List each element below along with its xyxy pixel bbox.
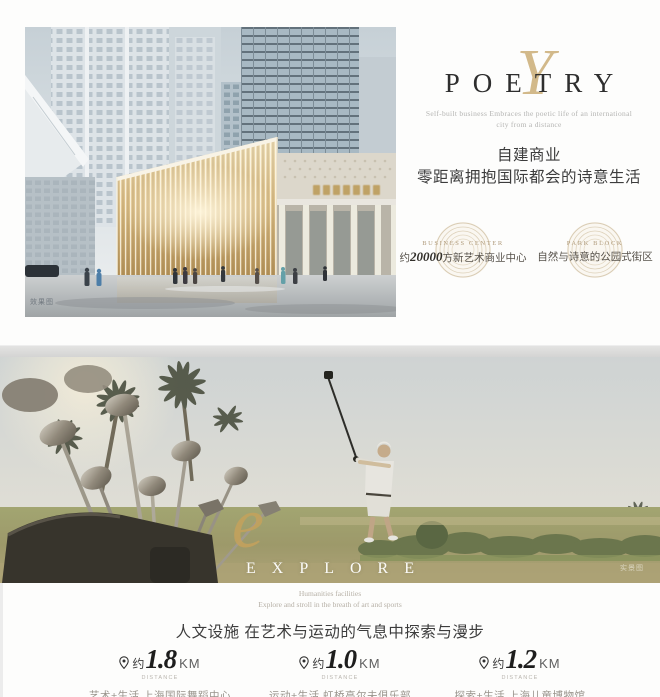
distance-item-children-museum: 约 1.2 KM DISTANCE 探索+生活 上海儿童博物馆 — [430, 646, 610, 697]
bottom-chinese-heading: 人文设施 在艺术与运动的气息中探索与漫步 — [0, 620, 660, 642]
explore-subtitle-line1: Humanities facilities — [0, 588, 660, 599]
badge-label-en: PARK BLOCK — [536, 240, 654, 247]
distance-value: 1.2 — [505, 646, 536, 673]
building-scene-illustration — [25, 27, 396, 317]
distance-unit: KM — [179, 656, 201, 671]
badge-park-block: PARK BLOCK 自然与诗意的公园式街区 — [536, 220, 654, 286]
badge-text-cn: 自然与诗意的公园式街区 — [528, 249, 660, 264]
distance-value: 1.0 — [325, 646, 356, 673]
badge-cn-number: 20000 — [410, 249, 443, 264]
distance-item-golf-club: 约 1.0 KM DISTANCE 运动+生活 虹桥高尔夫俱乐部 — [250, 646, 430, 697]
distance-prefix: 约 — [132, 655, 144, 672]
distance-item-dance-center: 约 1.8 KM DISTANCE 艺术+生活 上海国际舞蹈中心 — [70, 646, 250, 697]
top-chinese-heading-line1: 自建商业 — [400, 145, 658, 167]
promo-page: 效果图 Y POETRY Self-built business Embrace… — [0, 0, 660, 697]
render-watermark: 效果图 — [30, 297, 54, 307]
distance-prefix: 约 — [312, 655, 324, 672]
photo-watermark: 实景图 — [620, 563, 644, 573]
explore-subtitle: Humanities facilities Explore and stroll… — [0, 588, 660, 611]
badge-label-en: BUSINESS CENTER — [404, 240, 522, 247]
feature-badges: BUSINESS CENTER 约20000方新艺术商业中心 PARK BLOC… — [400, 220, 658, 286]
location-pin-icon — [299, 656, 309, 669]
poetry-text-block: Y POETRY Self-built business Embraces th… — [400, 40, 658, 189]
distance-caption: DISTANCE — [70, 675, 250, 681]
top-chinese-heading: 自建商业 零距离拥抱国际都会的诗意生活 — [400, 145, 658, 190]
poetry-subtitle: Self-built business Embraces the poetic … — [400, 108, 658, 131]
distance-caption: DISTANCE — [250, 675, 430, 681]
top-section: 效果图 Y POETRY Self-built business Embrace… — [0, 0, 660, 345]
badge-business-center: BUSINESS CENTER 约20000方新艺术商业中心 — [404, 220, 522, 286]
golf-scene-illustration — [0, 357, 660, 583]
poetry-title: POETRY — [400, 68, 658, 99]
badge-cn-prefix: 约 — [400, 252, 411, 264]
distance-unit: KM — [359, 656, 381, 671]
poetry-subtitle-line1: Self-built business Embraces the poetic … — [400, 108, 658, 119]
explore-title: EXPLORE — [0, 560, 660, 578]
distance-prefix: 约 — [492, 655, 504, 672]
section-divider — [0, 345, 660, 357]
distance-list: 约 1.8 KM DISTANCE 艺术+生活 上海国际舞蹈中心 约 1.0 K… — [0, 646, 660, 697]
building-render-image: 效果图 — [25, 27, 396, 317]
poetry-subtitle-line2: city from a distance — [400, 119, 658, 130]
location-pin-icon — [479, 656, 489, 669]
distance-value: 1.8 — [145, 646, 176, 673]
location-pin-icon — [119, 656, 129, 669]
distance-label: 探索+生活 上海儿童博物馆 — [430, 688, 610, 697]
distance-unit: KM — [539, 656, 561, 671]
badge-text-cn: 约20000方新艺术商业中心 — [396, 249, 530, 265]
explore-subtitle-line2: Explore and stroll in the breath of art … — [0, 599, 660, 610]
top-chinese-heading-line2: 零距离拥抱国际都会的诗意生活 — [400, 167, 658, 189]
distance-label: 运动+生活 虹桥高尔夫俱乐部 — [250, 688, 430, 697]
badge-cn-suffix: 方新艺术商业中心 — [443, 252, 527, 264]
distance-label: 艺术+生活 上海国际舞蹈中心 — [70, 688, 250, 697]
golf-photo: e EXPLORE 实景图 — [0, 357, 660, 583]
distance-caption: DISTANCE — [430, 675, 610, 681]
